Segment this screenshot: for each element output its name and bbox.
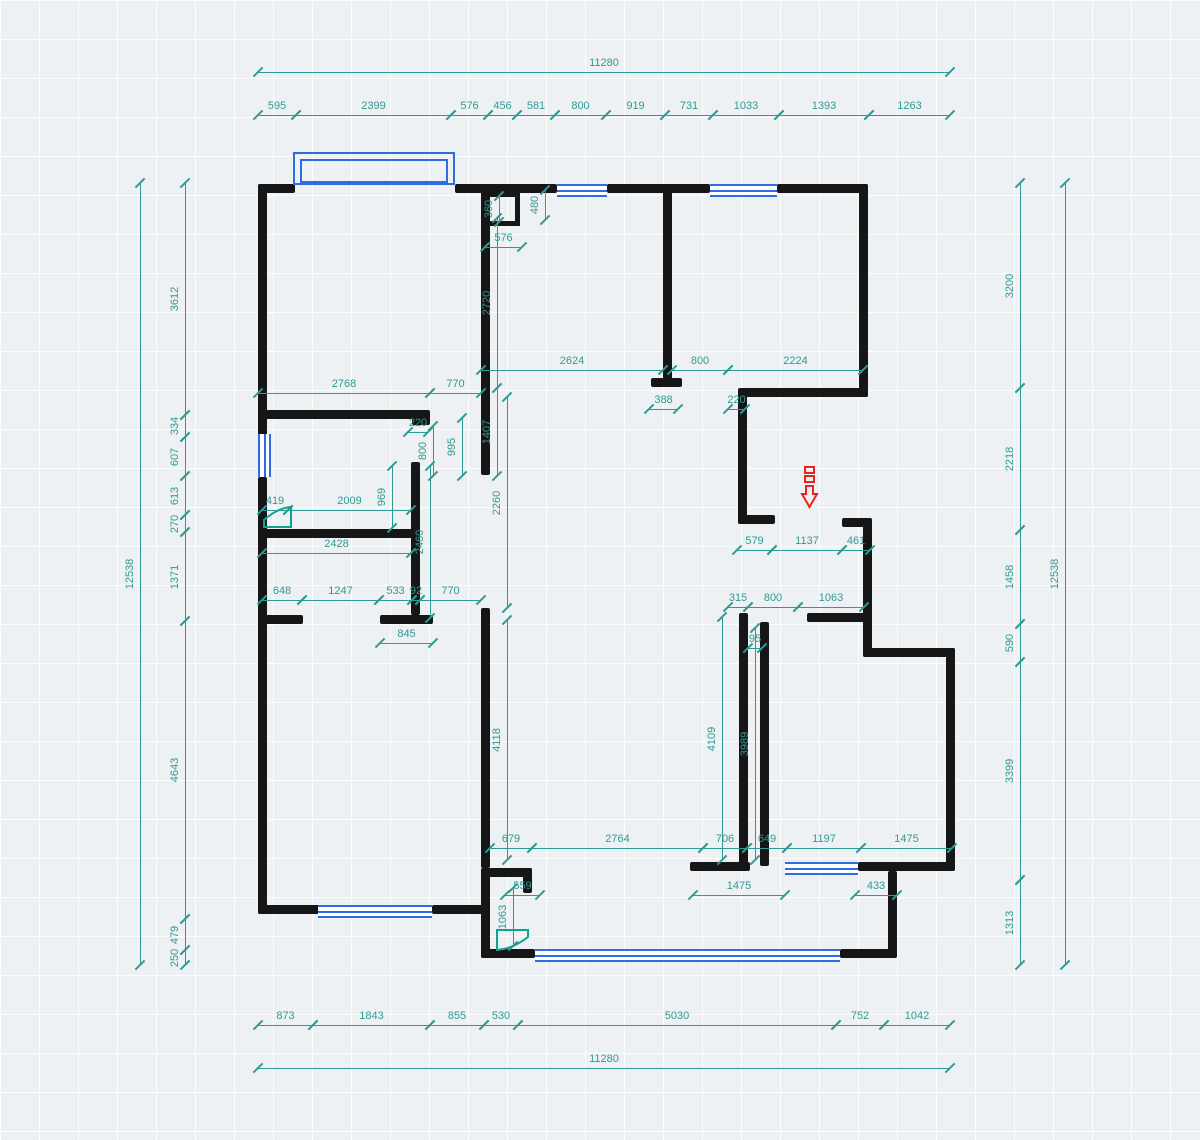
dimension-line: [507, 397, 508, 608]
window-core: [710, 190, 777, 192]
entry-direction-arrow: [800, 466, 820, 514]
dimension-line: [185, 919, 186, 950]
dimension-line: [258, 115, 296, 116]
window-core: [264, 434, 266, 477]
dimension-line: [518, 1025, 836, 1026]
dimension-line: [485, 247, 522, 248]
dimension-label: 770: [446, 378, 464, 390]
window: [535, 949, 840, 962]
dimension-label: 995: [446, 438, 458, 456]
dimension-label: 800: [571, 100, 589, 112]
dimension-line: [665, 115, 713, 116]
dimension-line: [532, 848, 703, 849]
window: [258, 434, 271, 477]
dimension-line: [1020, 662, 1021, 880]
dimension-label: 315: [729, 592, 747, 604]
dimension-line: [185, 621, 186, 919]
floorplan-canvas: 1128059523995764565818009197311033139312…: [0, 0, 1200, 1140]
dimension-line: [748, 607, 798, 608]
dimension-label: 706: [716, 833, 734, 845]
dimension-line: [258, 393, 430, 394]
dimension-label: 581: [527, 100, 545, 112]
dimension-line: [545, 190, 546, 220]
dimension-line: [302, 600, 379, 601]
dimension-line: [1020, 624, 1021, 662]
dimension-line: [488, 115, 517, 116]
dimension-label: 5030: [665, 1010, 689, 1022]
dimension-line: [517, 115, 555, 116]
dimension-label: 1063: [819, 592, 843, 604]
dimension-label: 3200: [1004, 273, 1016, 297]
window-core: [785, 868, 858, 870]
dimension-label: 4118: [491, 728, 503, 752]
dimension-label: 480: [529, 196, 541, 214]
dimension-label: 649: [758, 833, 776, 845]
dimension-label: 1033: [734, 100, 758, 112]
dimension-label: 590: [1004, 634, 1016, 652]
dimension-line: [484, 1025, 518, 1026]
dimension-line: [262, 553, 411, 554]
dimension-label: 2224: [783, 355, 807, 367]
dimension-label: 2009: [337, 495, 361, 507]
dimension-label: 595: [268, 100, 286, 112]
dimension-line: [185, 183, 186, 415]
window-core: [535, 955, 840, 957]
dimension-line: [1065, 183, 1066, 965]
dimension-label: 607: [169, 447, 181, 465]
window: [710, 184, 777, 197]
wall-segment: [863, 648, 955, 657]
wall-segment: [946, 648, 955, 871]
dimension-label: 800: [764, 592, 782, 604]
dimension-line: [672, 370, 728, 371]
dimension-label: 1042: [905, 1010, 929, 1022]
dimension-label: 648: [273, 585, 291, 597]
dimension-line: [462, 418, 463, 476]
dimension-line: [379, 600, 412, 601]
dimension-label: 360: [483, 200, 495, 218]
window-core: [318, 911, 432, 913]
dimension-line: [481, 370, 663, 371]
dimension-line: [713, 115, 779, 116]
dimension-label: 1371: [169, 564, 181, 588]
dimension-line: [787, 848, 861, 849]
dimension-label: 92: [410, 585, 422, 597]
dimension-label: 731: [680, 100, 698, 112]
dimension-line: [649, 409, 678, 410]
dimension-label: 11280: [589, 57, 619, 69]
dimension-label: 2624: [560, 355, 584, 367]
dimension-line: [693, 895, 785, 896]
dimension-line: [258, 1068, 950, 1069]
dimension-line: [755, 628, 756, 860]
dimension-line: [722, 617, 723, 860]
dimension-label: 1313: [1004, 910, 1016, 934]
dimension-line: [884, 1025, 950, 1026]
dimension-line: [737, 550, 772, 551]
dimension-label: 2399: [361, 100, 385, 112]
dimension-label: 1263: [897, 100, 921, 112]
dimension-label: 12538: [1049, 559, 1061, 590]
dimension-label: 1393: [812, 100, 836, 112]
dimension-label: 1475: [727, 880, 751, 892]
dimension-label: 855: [448, 1010, 466, 1022]
dimension-line: [1020, 530, 1021, 624]
dimension-label: 220: [727, 394, 745, 406]
dimension-line: [296, 115, 451, 116]
dimension-line: [258, 1025, 313, 1026]
window: [557, 184, 607, 197]
dimension-line: [1020, 880, 1021, 965]
dimension-line: [262, 600, 302, 601]
wall-segment: [258, 905, 320, 914]
dimension-line: [507, 620, 508, 860]
wall-segment: [258, 477, 267, 914]
dimension-label: 679: [502, 833, 520, 845]
dimension-label: 2218: [1004, 447, 1016, 471]
dimension-label: 969: [376, 488, 388, 506]
wall-segment: [807, 613, 872, 622]
dimension-label: 1137: [795, 535, 819, 547]
dimension-label: 752: [851, 1010, 869, 1022]
wall-segment: [607, 184, 710, 193]
dimension-line: [779, 115, 869, 116]
wall-segment: [858, 862, 955, 871]
dimension-label: 613: [169, 486, 181, 504]
dimension-label: 1063: [497, 905, 509, 929]
dimension-label: 873: [276, 1010, 294, 1022]
dimension-label: 12538: [124, 559, 136, 590]
dimension-label: 479: [169, 925, 181, 943]
dimension-line: [497, 388, 498, 476]
dimension-label: 4643: [169, 758, 181, 782]
wall-segment: [651, 378, 682, 387]
dimension-line: [497, 218, 498, 388]
dimension-line: [1020, 183, 1021, 388]
dimension-label: 1475: [894, 833, 918, 845]
wall-segment: [481, 608, 490, 868]
dimension-line: [555, 115, 606, 116]
dimension-line: [836, 1025, 884, 1026]
dimension-label: 461: [847, 535, 865, 547]
wall-segment: [777, 184, 868, 193]
dimension-line: [433, 426, 434, 476]
dimension-label: 579: [745, 535, 763, 547]
dimension-line: [505, 895, 540, 896]
dimension-line: [430, 393, 481, 394]
dimension-label: 800: [691, 355, 709, 367]
dimension-label: 3612: [169, 287, 181, 311]
dimension-line: [140, 183, 141, 965]
dimension-label: 270: [169, 514, 181, 532]
bay-window-inner: [300, 159, 448, 183]
window: [318, 905, 432, 918]
dimension-label: 1407: [481, 420, 493, 444]
dimension-line: [380, 643, 433, 644]
door-symbol: [496, 929, 529, 951]
dimension-label: 845: [397, 628, 415, 640]
dimension-label: 388: [654, 394, 672, 406]
dimension-label: 2768: [332, 378, 356, 390]
dimension-line: [430, 466, 431, 618]
dimension-label: 770: [441, 585, 459, 597]
wall-segment: [840, 949, 897, 958]
door-symbol: [263, 506, 292, 528]
wall-segment: [258, 615, 303, 624]
wall-segment: [741, 388, 868, 397]
dimension-label: 456: [493, 100, 511, 112]
window-core: [557, 190, 607, 192]
dimension-line: [258, 72, 950, 73]
dimension-label: 1458: [1004, 565, 1016, 589]
wall-segment: [760, 622, 769, 866]
dimension-label: 2720: [481, 291, 493, 315]
wall-segment: [888, 871, 897, 958]
dimension-label: 2764: [605, 833, 629, 845]
wall-segment: [258, 410, 430, 419]
dimension-line: [1020, 388, 1021, 530]
dimension-line: [772, 550, 842, 551]
dimension-label: 2460: [414, 530, 426, 554]
dimension-line: [855, 895, 897, 896]
dimension-line: [185, 476, 186, 515]
dimension-label: 11280: [589, 1053, 619, 1065]
dimension-line: [313, 1025, 430, 1026]
dimension-line: [703, 848, 747, 849]
dimension-label: 250: [169, 948, 181, 966]
dimension-line: [185, 437, 186, 476]
dimension-line: [490, 848, 532, 849]
dimension-line: [430, 1025, 484, 1026]
dimension-line: [869, 115, 950, 116]
dimension-line: [861, 848, 952, 849]
dimension-label: 433: [867, 880, 885, 892]
dimension-label: 4109: [706, 726, 718, 750]
dimension-line: [451, 115, 488, 116]
dimension-label: 919: [626, 100, 644, 112]
dimension-label: 800: [417, 442, 429, 460]
dimension-line: [798, 607, 864, 608]
window: [785, 862, 858, 875]
dimension-label: 530: [492, 1010, 510, 1022]
wall-segment: [481, 868, 490, 958]
dimension-label: 3989: [739, 732, 751, 756]
dimension-label: 2260: [491, 490, 503, 514]
dimension-label: 220: [409, 417, 427, 429]
wall-segment: [262, 529, 417, 538]
dimension-label: 2428: [324, 538, 348, 550]
dimension-line: [606, 115, 665, 116]
dimension-label: 1843: [359, 1010, 383, 1022]
dimension-label: 576: [460, 100, 478, 112]
dimension-label: 1197: [812, 833, 836, 845]
dimension-line: [728, 370, 863, 371]
dimension-label: 334: [169, 417, 181, 435]
dimension-line: [392, 466, 393, 528]
wall-segment: [738, 515, 775, 524]
dimension-label: 3399: [1004, 759, 1016, 783]
dimension-label: 1247: [328, 585, 352, 597]
dimension-label: 533: [386, 585, 404, 597]
dimension-line: [747, 848, 787, 849]
wall-segment: [258, 184, 267, 437]
dimension-line: [185, 532, 186, 621]
wall-segment: [663, 190, 672, 380]
